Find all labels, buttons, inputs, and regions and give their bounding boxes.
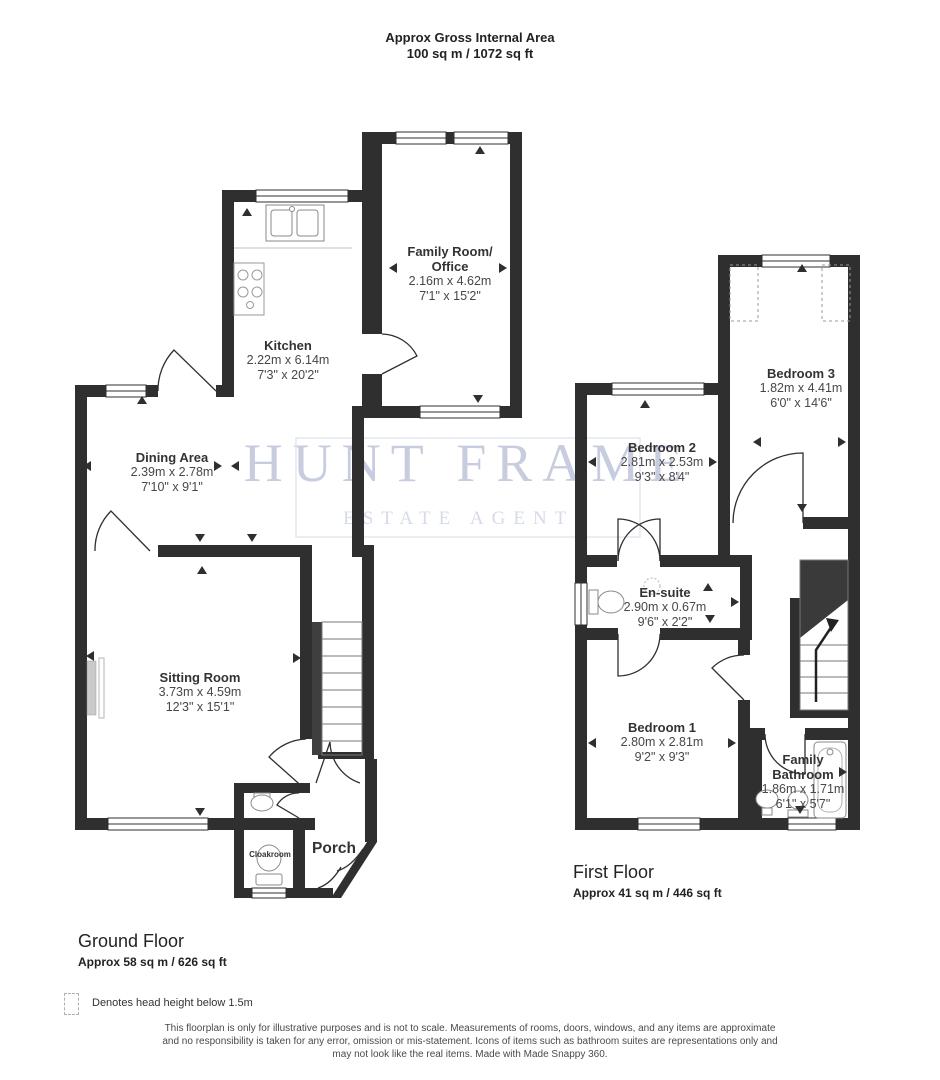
measure-arrow-icon xyxy=(753,437,761,447)
cloakroom-basin-icon xyxy=(251,793,273,811)
window-icon xyxy=(638,818,700,830)
head-height-region xyxy=(730,265,758,321)
measure-arrow-icon xyxy=(838,437,846,447)
door-icon xyxy=(618,519,660,561)
door-icon xyxy=(158,350,216,391)
ground-floor-plan xyxy=(75,132,522,898)
window-icon xyxy=(612,383,704,395)
bath-icon xyxy=(814,742,846,818)
first-floor-door-icons xyxy=(618,453,805,774)
extractor-icon xyxy=(644,578,660,594)
floorplan-page: HUNT FRAME ESTATE AGENTS xyxy=(0,0,940,1080)
measure-arrow-icon xyxy=(705,615,715,623)
watermark-frame xyxy=(296,438,640,537)
hob-icon xyxy=(234,263,264,315)
door-icon xyxy=(733,453,803,523)
stairs-direction-arrow-icon xyxy=(816,626,832,702)
measure-arrow-icon xyxy=(703,583,713,591)
measure-arrow-icon xyxy=(86,651,94,661)
measure-arrow-icon xyxy=(293,653,301,663)
window-icon xyxy=(454,132,508,144)
first-floor-window-icons xyxy=(575,255,836,830)
window-icon xyxy=(396,132,446,144)
measure-arrow-icon xyxy=(588,457,596,467)
door-icon xyxy=(712,655,744,700)
measure-arrow-icon xyxy=(242,208,252,216)
head-height-region xyxy=(822,265,850,321)
first-floor-plan xyxy=(575,255,860,830)
door-icon xyxy=(765,734,805,774)
door-icon xyxy=(316,742,360,783)
measure-arrow-icon xyxy=(195,534,205,542)
door-icon xyxy=(318,867,341,888)
floorplan-drawing xyxy=(0,0,940,1080)
bathroom-toilet-icon xyxy=(788,791,808,817)
measure-arrow-icon xyxy=(247,534,257,542)
window-icon xyxy=(788,818,836,830)
measure-arrow-icon xyxy=(588,738,596,748)
door-icon xyxy=(269,739,306,790)
measure-arrow-icon xyxy=(728,738,736,748)
measure-arrow-icon xyxy=(475,146,485,154)
door-icon xyxy=(95,511,150,551)
window-icon xyxy=(575,583,587,625)
door-icon xyxy=(618,519,660,561)
measure-arrow-icon xyxy=(389,263,397,273)
door-icon xyxy=(382,334,417,374)
measure-arrow-icon xyxy=(197,566,207,574)
measure-arrow-icon xyxy=(499,263,507,273)
cloakroom-toilet-icon xyxy=(256,845,282,885)
window-icon xyxy=(256,190,348,202)
window-icon xyxy=(252,888,286,898)
stairs-icon xyxy=(800,560,848,710)
measure-arrow-icon xyxy=(640,400,650,408)
window-icon xyxy=(762,255,830,267)
head-height-regions xyxy=(730,265,850,321)
ensuite-toilet-icon xyxy=(589,590,624,614)
measure-arrow-icon xyxy=(195,808,205,816)
measure-arrow-icon xyxy=(214,461,222,471)
measure-arrow-icon xyxy=(709,457,717,467)
measure-arrow-icon xyxy=(473,395,483,403)
kitchen-sink-icon xyxy=(234,205,352,248)
window-icon xyxy=(106,385,146,397)
measure-arrow-icon xyxy=(731,597,739,607)
door-icon xyxy=(618,634,660,676)
chimney-breast xyxy=(87,658,104,718)
window-icon xyxy=(420,406,500,418)
measure-arrow-icon xyxy=(797,504,807,512)
measure-arrow-icon xyxy=(231,461,239,471)
measure-arrow-icons xyxy=(83,146,507,816)
stairs-icon xyxy=(312,622,362,755)
window-icon xyxy=(108,818,208,830)
door-icon xyxy=(277,793,299,818)
